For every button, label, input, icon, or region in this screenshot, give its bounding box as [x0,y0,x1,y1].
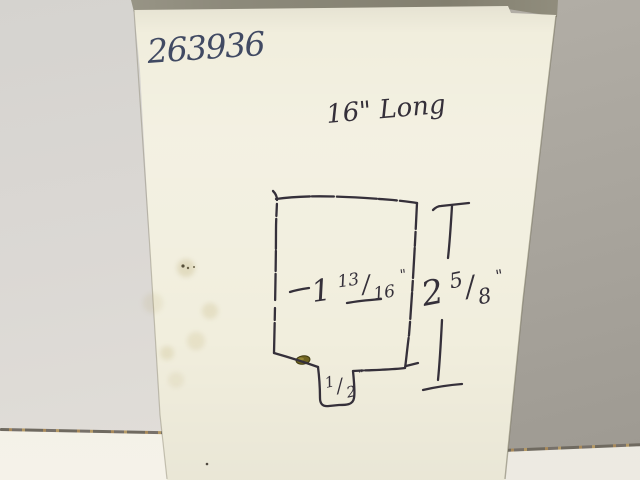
height-dim-line-lower [438,320,442,380]
width-numerator: 13 [336,269,360,292]
length-note-text: 16" Long [325,90,447,130]
height-denominator: 8 [476,283,494,309]
sketch-rect-left-edge [274,199,277,353]
width-unit-quote: " [399,267,408,284]
width-dim-left-dash [290,288,309,292]
tab-unit-quote: " [357,367,365,381]
tab-denominator: 2 [344,382,358,402]
width-dimension-text: 1 13 / 16 " [309,262,410,313]
width-denominator: 16 [372,282,396,305]
sketch-rect-right-edge [405,203,417,368]
handwriting-layer: 263936 16" Long 1 13 / 16 " 2 5 / 8 " 1 … [0,0,640,480]
part-number-text: 263936 [145,24,266,71]
height-dim-bottom-bar [423,384,462,390]
paper-stain-specks [181,264,208,465]
photo-scene: 263936 16" Long 1 13 / 16 " 2 5 / 8 " 1 … [0,0,640,480]
height-dimension-text: 2 5 / 8 " [417,260,509,320]
height-whole: 2 [417,271,447,315]
height-dim-line-upper [448,206,452,258]
sketch-rect-top-edge [276,196,417,203]
paper-left-edge-line [134,10,167,479]
width-whole: 1 [309,273,333,310]
height-unit-quote: " [494,266,505,286]
tab-dimension-text: 1 / 2 " [323,365,369,406]
paper-right-edge-line [505,16,556,479]
sketch-rect-bottom-left-edge [274,353,318,367]
